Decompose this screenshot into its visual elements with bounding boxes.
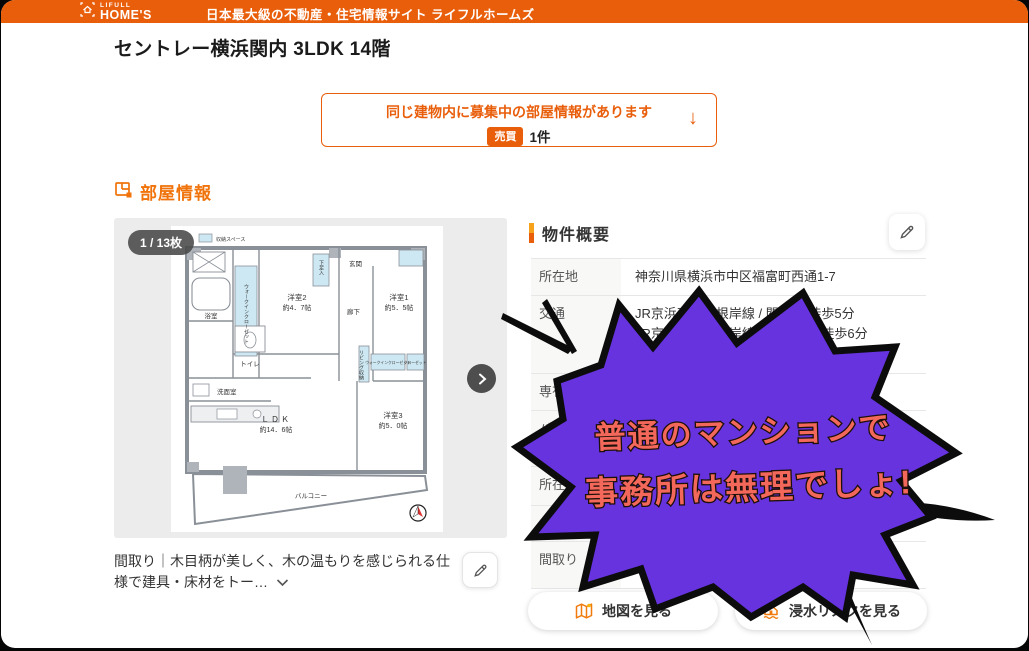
summary-title: 物件概要 xyxy=(542,221,610,245)
view-map-button[interactable]: 地図を見る xyxy=(528,592,718,630)
summary-table: 所在地 神奈川県横浜市中区福富町西通1-7 交通 JR京浜東北・根岸線 / 関内… xyxy=(531,258,926,589)
pencil-icon xyxy=(898,223,916,241)
same-building-notice[interactable]: 同じ建物内に募集中の部屋情報があります 売買 1件 ↓ xyxy=(321,93,717,147)
table-row: 主要採光面 xyxy=(531,506,926,543)
floorplan-image[interactable]: 収納スペース xyxy=(171,226,443,532)
svg-text:約14．6帖: 約14．6帖 xyxy=(260,425,293,434)
chevron-down-icon xyxy=(692,350,703,358)
chevron-down-icon[interactable] xyxy=(276,578,289,587)
pencil-icon xyxy=(472,562,489,579)
table-row: 所在階 xyxy=(531,467,926,506)
homes-logo-text: LIFULL HOME'S xyxy=(100,3,152,22)
summary-accent-bar xyxy=(529,223,534,243)
photo-counter-badge: 1 / 13枚 xyxy=(128,230,194,255)
table-row: 交通 JR京浜東北・根岸線 / 関内駅 徒歩5分 JR京浜東北・根岸線 / 桜木… xyxy=(531,296,926,373)
flood-risk-button[interactable]: 浸水リスクを見る xyxy=(735,592,927,630)
fp-bath-label: 浴室 xyxy=(205,311,219,320)
page-title: セントレー横浜関内 3LDK 14階 xyxy=(114,34,391,61)
map-icon xyxy=(574,601,594,621)
svg-text:約5．5帖: 約5．5帖 xyxy=(385,303,414,312)
floorplan-caption: 間取り｜木目柄が美しく、木の温もりを感じられる仕様で建具・床材をトー… xyxy=(114,551,456,593)
fp-entrance-label: 玄関 xyxy=(349,259,362,268)
summary-edit-button[interactable] xyxy=(889,214,925,250)
table-row: バルコニー面積 xyxy=(531,411,926,467)
site-tagline: 日本最大級の不動産・住宅情報サイト ライフルホームズ xyxy=(206,4,535,23)
homes-logo[interactable]: LIFULL HOME'S xyxy=(79,1,152,23)
fp-room3-label: 洋室3 xyxy=(383,410,402,420)
carousel-next-button[interactable] xyxy=(467,364,496,393)
fp-balcony-label: バルコニー xyxy=(295,492,327,500)
fp-legend-label: 収納スペース xyxy=(216,236,245,243)
svg-text:約5．0帖: 約5．0帖 xyxy=(379,421,408,430)
fp-hall-label: 廊下 xyxy=(347,307,361,316)
room-info-section-header: 部屋情報 xyxy=(114,179,212,204)
photo-gallery: 収納スペース xyxy=(114,218,507,538)
summary-section-header: 物件概要 xyxy=(529,221,610,245)
fp-room2-label: 洋室2 xyxy=(287,292,306,302)
fp-room1-label: 洋室1 xyxy=(389,292,408,302)
site-header: LIFULL HOME'S 日本最大級の不動産・住宅情報サイト ライフルホームズ xyxy=(1,0,1028,23)
table-row: 専有面積 xyxy=(531,374,926,411)
fp-living-storage-label: リビング収納 xyxy=(358,350,364,381)
arrow-down-icon[interactable]: ↓ xyxy=(688,107,698,130)
fp-wash-label: 洗面室 xyxy=(217,387,237,396)
page-card: LIFULL HOME'S 日本最大級の不動産・住宅情報サイト ライフルホームズ… xyxy=(1,0,1028,648)
homes-house-icon xyxy=(79,1,96,23)
sale-badge: 売買 xyxy=(487,127,523,146)
flood-house-icon xyxy=(761,601,781,621)
fp-wic-label: ウォークインクローゼット xyxy=(243,283,249,344)
notice-count: 1件 xyxy=(529,126,550,146)
fp-closet-label: クローゼット xyxy=(404,360,427,365)
fp-toilet-label: トイレ xyxy=(240,361,260,368)
floorplan-edit-button[interactable] xyxy=(462,552,498,588)
fp-shoe-label: 下足入 xyxy=(318,260,324,275)
room-info-title: 部屋情報 xyxy=(140,179,212,204)
table-row: 間取り 3LDK（LDK14.6帖（リビングダイ xyxy=(531,542,926,589)
svg-text:約4．7帖: 約4．7帖 xyxy=(283,303,312,312)
fp-ldk-label: ＬＤＫ xyxy=(261,415,291,424)
table-row: 所在地 神奈川県横浜市中区福富町西通1-7 xyxy=(531,259,926,296)
notice-text: 同じ建物内に募集中の部屋情報があります xyxy=(322,102,716,122)
chevron-right-icon xyxy=(475,372,489,386)
floorplan-icon xyxy=(114,180,133,204)
transit-more-link[interactable]: 見る xyxy=(661,344,703,364)
